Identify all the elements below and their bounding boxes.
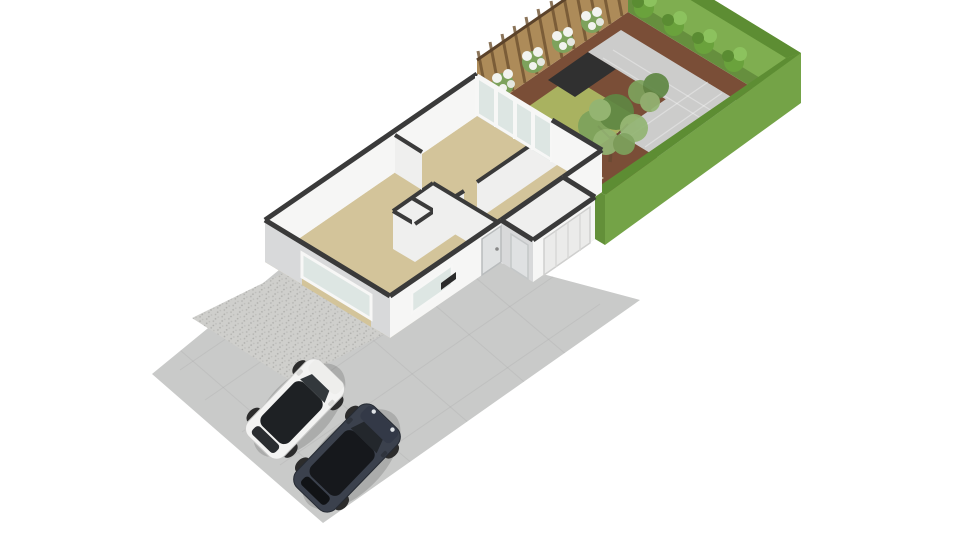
blossom	[588, 22, 596, 30]
blossom	[529, 62, 537, 70]
blossom	[581, 11, 591, 21]
blossom	[492, 73, 502, 83]
blossom	[533, 47, 543, 57]
door-handle	[495, 247, 499, 251]
scene-canvas	[0, 0, 960, 540]
blossom	[567, 38, 575, 46]
blossom	[592, 7, 602, 17]
floorplan-render	[0, 0, 960, 540]
blossom	[552, 31, 562, 41]
bush-foliage	[722, 50, 734, 62]
bush-foliage	[703, 29, 717, 43]
blossom	[559, 42, 567, 50]
bush-foliage	[673, 11, 687, 25]
tree-foliage	[613, 133, 635, 155]
tree-foliage	[640, 92, 660, 112]
blossom	[507, 80, 515, 88]
bush-foliage	[733, 47, 747, 61]
blossom	[563, 27, 573, 37]
hedge-end-cap	[595, 189, 605, 245]
bush-foliage	[692, 32, 704, 44]
tree-foliage	[589, 99, 611, 121]
blossom	[503, 69, 513, 79]
blossom	[596, 18, 604, 26]
bush-foliage	[662, 14, 674, 26]
blossom	[522, 51, 532, 61]
blossom	[537, 58, 545, 66]
